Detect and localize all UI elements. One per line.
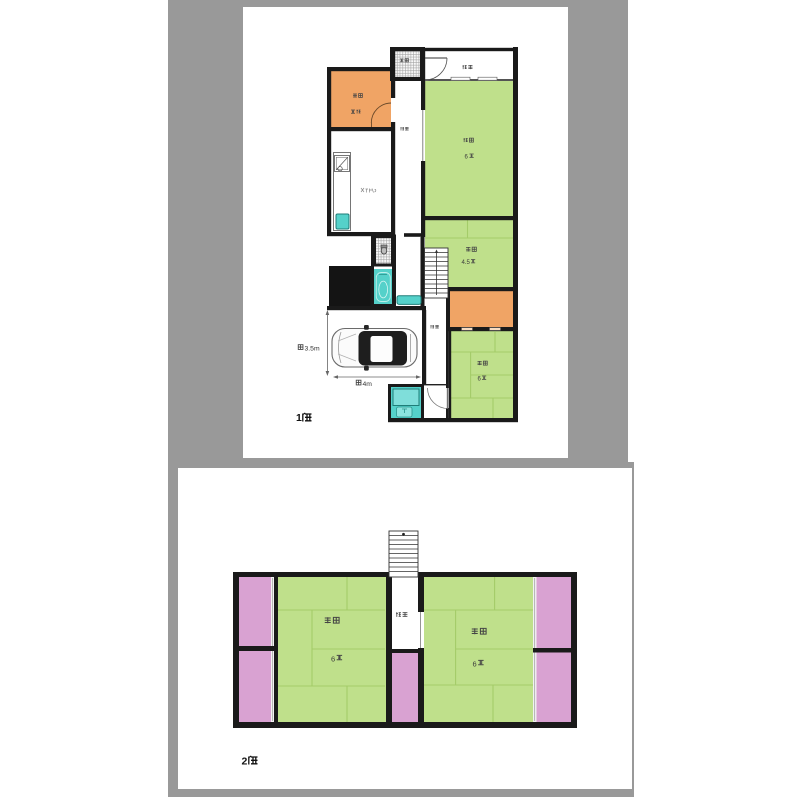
svg-text:4m: 4m [363, 381, 373, 388]
svg-text:6: 6 [331, 655, 335, 664]
svg-text:2: 2 [242, 756, 248, 768]
svg-text:1: 1 [296, 412, 302, 424]
svg-text:6: 6 [473, 660, 477, 669]
svg-text:4.5: 4.5 [462, 260, 471, 266]
svg-text:3.5m: 3.5m [305, 346, 320, 353]
